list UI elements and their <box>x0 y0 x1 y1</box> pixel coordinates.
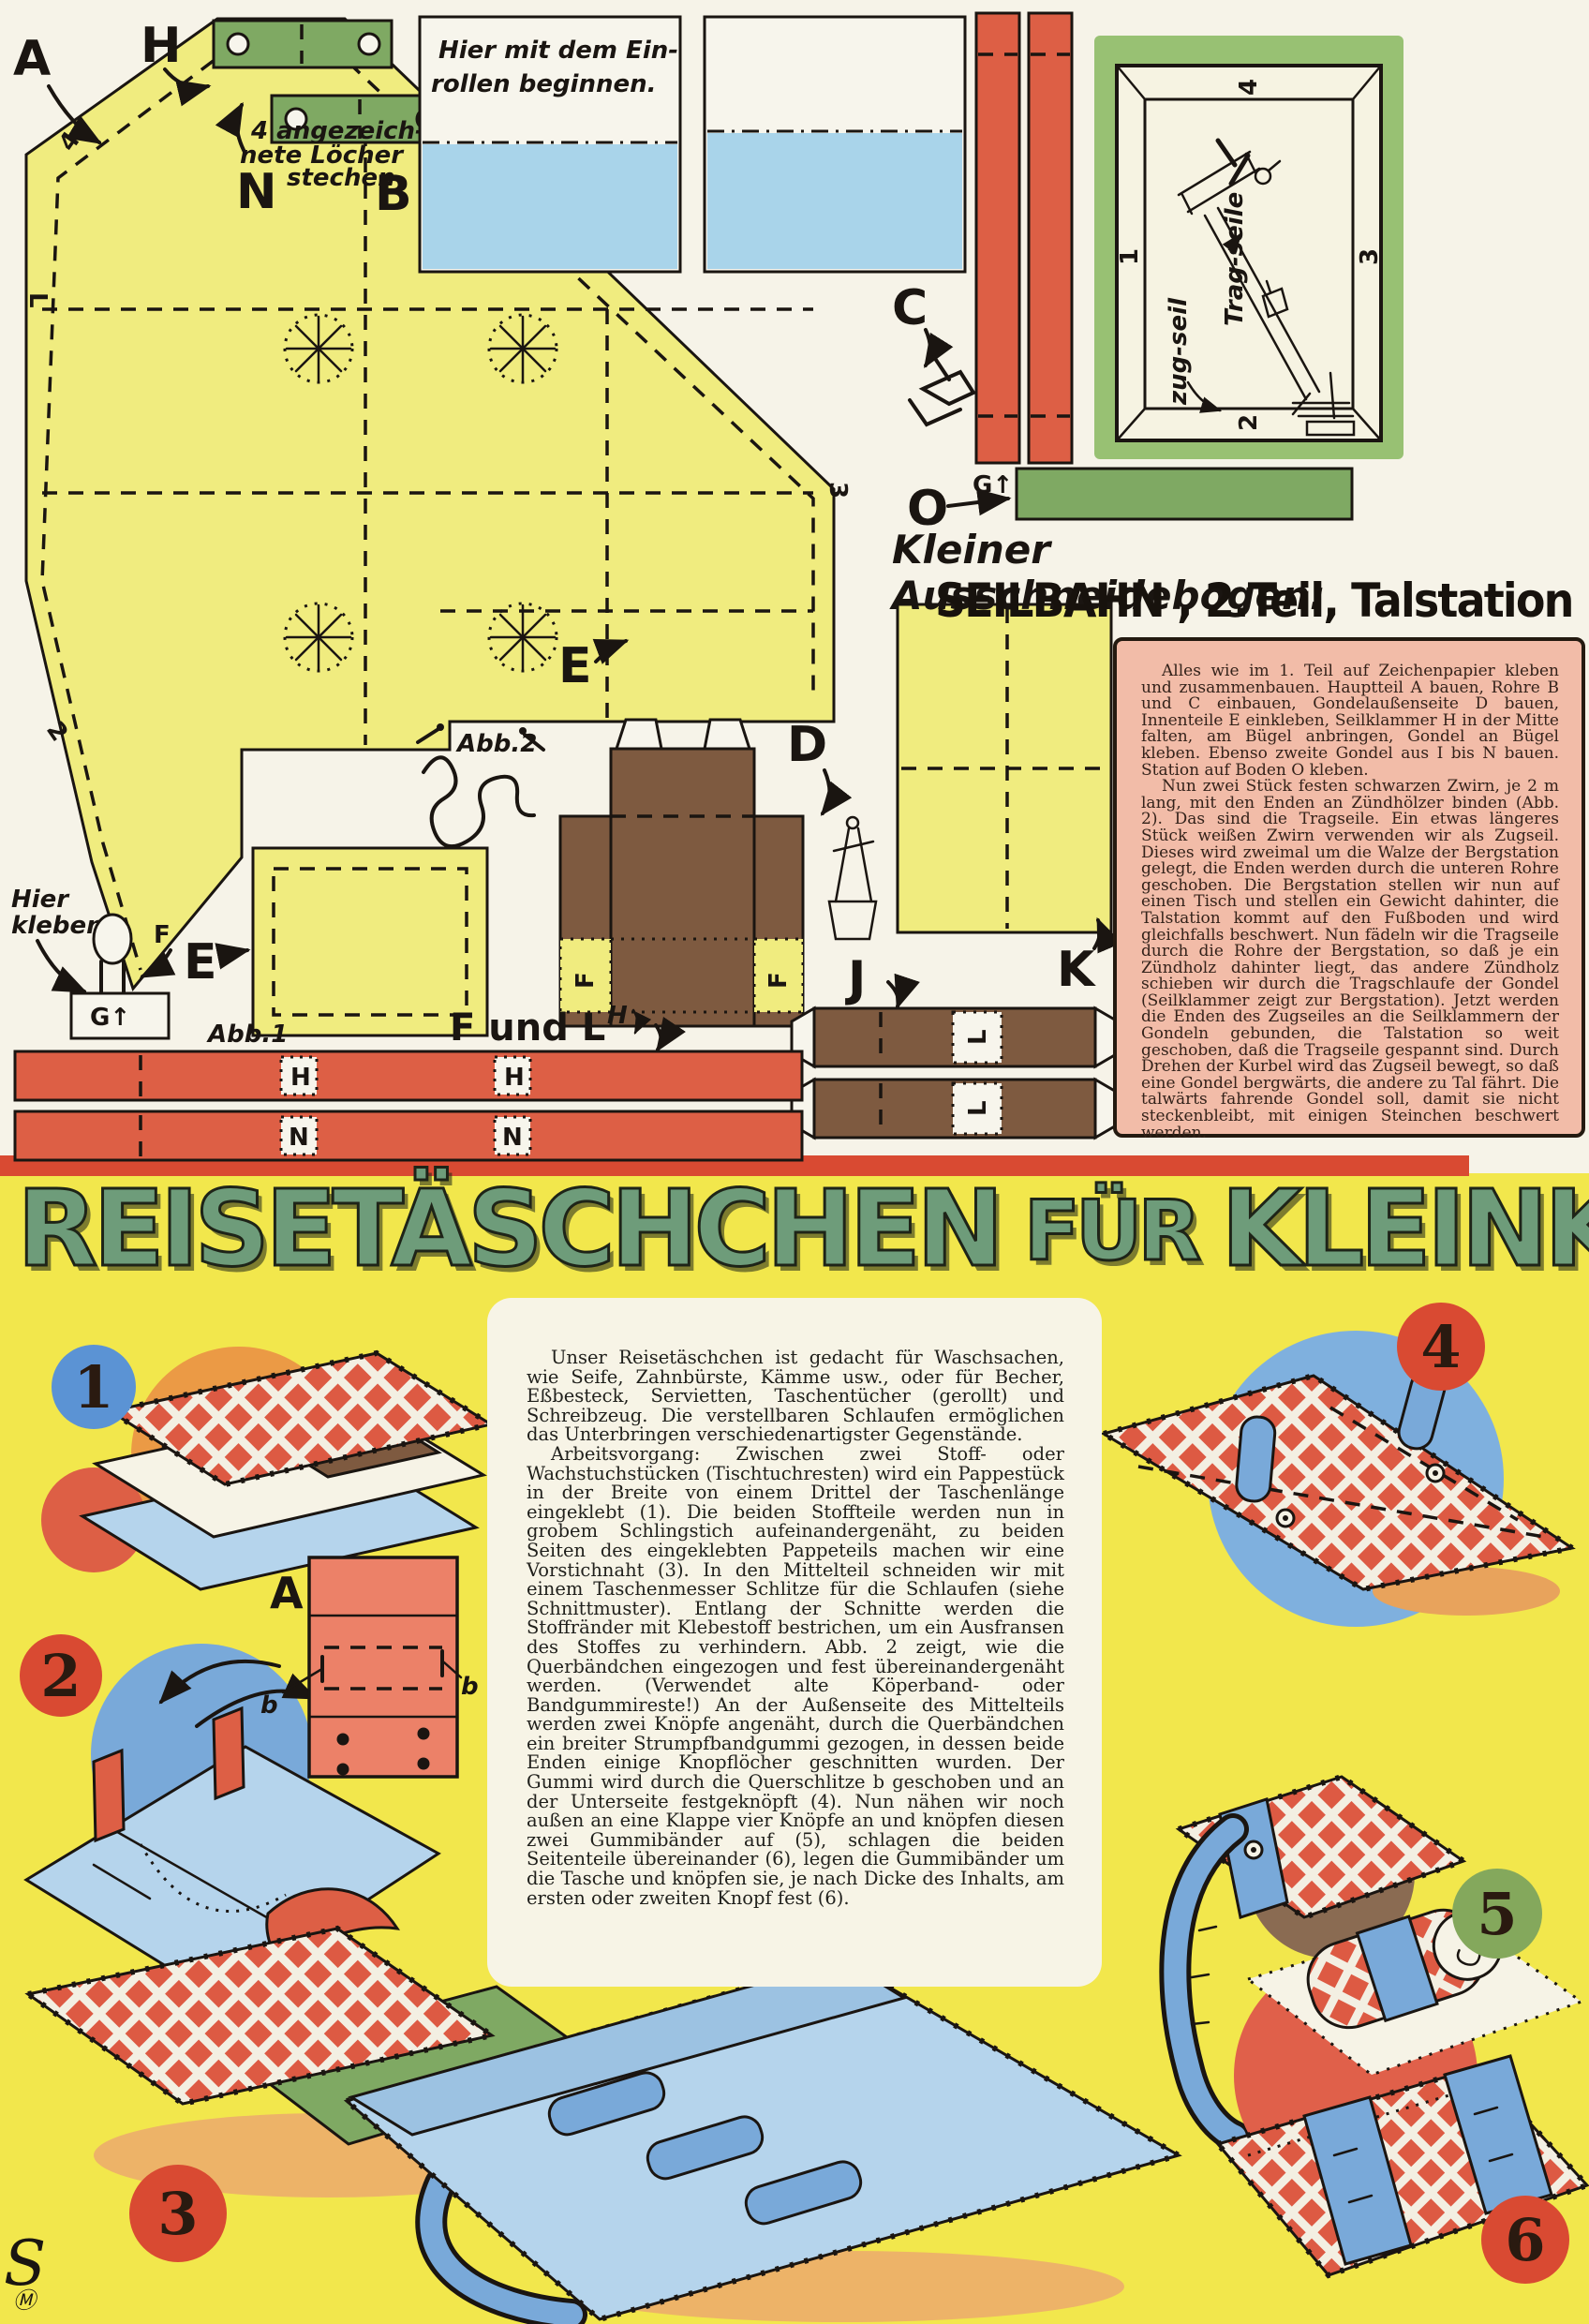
label-piece-N: N <box>236 164 277 220</box>
schematic-label-b-right: b <box>461 1673 479 1701</box>
d-tab-F-left: F <box>572 972 600 989</box>
page-title-seilbahn: SEILBAHN , 2.Teil, Talstation <box>935 574 1538 628</box>
finished-model-picture: 4 1 3 2 Trag-seile zug-seil <box>1094 36 1403 459</box>
label-F-und-L: F und L <box>450 1006 605 1050</box>
piece-J-bars: L L <box>792 1008 1118 1138</box>
edge-mark-3: 3 <box>824 482 852 499</box>
figure-number-1: 1 <box>52 1345 136 1429</box>
label-tragseile: Trag-seile <box>1221 192 1249 326</box>
publisher-logo: S Ⓜ <box>4 2236 46 2312</box>
frame-number-3: 3 <box>1356 248 1384 265</box>
note-roll-line2: rollen beginnen. <box>431 70 657 98</box>
svg-text:Hier: Hier <box>11 886 70 914</box>
article-paragraph-1: Unser Reisetäschchen ist gedacht für Was… <box>527 1348 1064 1445</box>
piece-K <box>898 604 1111 932</box>
arrow-O <box>948 499 1008 506</box>
gondola-sketch <box>829 817 876 939</box>
magazine-page: 4 L 2 3 A H 4 angezeich- nete Löcher ste… <box>0 0 1589 2324</box>
label-piece-F: F <box>154 921 171 949</box>
label-piece-E2: E <box>558 638 592 694</box>
j-tab-L1: L <box>964 1029 992 1045</box>
figure-number-3: 3 <box>129 2165 227 2262</box>
label-H-small: H <box>607 1002 628 1030</box>
frame-number-1: 1 <box>1116 248 1144 265</box>
bracket-sketch <box>910 357 973 425</box>
piece-D: F F <box>560 720 803 1026</box>
piece-O-floor <box>1017 469 1352 519</box>
strip1-tab-H1: H <box>290 1064 311 1092</box>
headline-word-1: REISETÄSCHCHEN <box>17 1177 1000 1282</box>
roll-box-2 <box>705 17 965 272</box>
piece-C-tubes <box>976 13 1072 463</box>
label-piece-B: B <box>375 166 412 222</box>
arrow-J <box>888 982 898 1006</box>
headline-word-2: FÜR <box>1024 1177 1196 1273</box>
figure-number-6: 6 <box>1481 2196 1569 2284</box>
arrow-C <box>926 330 930 365</box>
d-tab-F-right: F <box>765 972 793 989</box>
arrow-E1 <box>225 950 247 960</box>
instruction-box: Alles wie im 1. Teil auf Zeichenpapier k… <box>1113 637 1585 1138</box>
strip2-tab-N1: N <box>289 1124 309 1152</box>
edge-mark-L: L <box>23 292 52 308</box>
note-roll-line1: Hier mit dem Ein- <box>438 37 678 65</box>
label-piece-J: J <box>845 951 866 1007</box>
instruction-paragraph-1: Alles wie im 1. Teil auf Zeichenpapier k… <box>1141 663 1559 779</box>
piece-F-L-strips: H H N N <box>15 1051 802 1160</box>
figure-number-4: 4 <box>1397 1303 1485 1391</box>
instruction-paragraph-2: Nun zwei Stück festen schwarzen Zwirn, j… <box>1141 779 1559 1141</box>
hier-kleben-note: Hier kleben <box>11 886 104 991</box>
label-piece-H: H <box>141 18 182 74</box>
arrow-D <box>823 770 830 813</box>
piece-B-roll-box: Hier mit dem Ein- rollen beginnen. <box>420 17 680 272</box>
strip1-tab-H2: H <box>504 1064 525 1092</box>
label-piece-C: C <box>892 280 928 336</box>
figure-number-2: 2 <box>20 1634 102 1717</box>
frame-number-4: 4 <box>1235 79 1263 96</box>
frame-number-2: 2 <box>1235 414 1263 431</box>
strip2-tab-N2: N <box>502 1124 523 1152</box>
label-piece-K: K <box>1057 942 1096 998</box>
headline-word-3: KLEINKRAM <box>1221 1177 1589 1282</box>
figure-number-5: 5 <box>1452 1869 1542 1959</box>
article-text-panel: Unser Reisetäschchen ist gedacht für Was… <box>487 1298 1102 1987</box>
label-abb1: Abb.1 <box>206 1020 288 1049</box>
schematic-label-A: A <box>270 1568 304 1618</box>
arrow-FL <box>656 1025 661 1050</box>
g-box-label: G↑ <box>90 1004 130 1032</box>
headline-reisetaeschchen: REISETÄSCHCHEN FÜR KLEINKRAM <box>17 1177 1583 1282</box>
label-piece-E1: E <box>184 934 217 991</box>
label-zugseil: zug-seil <box>1165 297 1193 406</box>
j-tab-L2: L <box>964 1100 992 1116</box>
article-paragraph-2: Arbeitsvorgang: Zwischen zwei Stoff- ode… <box>527 1445 1064 1908</box>
label-piece-A: A <box>13 31 51 87</box>
schematic-label-b-left: b <box>260 1691 278 1720</box>
svg-text:kleben: kleben <box>11 912 104 940</box>
label-pi,ece-G: G↑ <box>973 471 1013 499</box>
label-piece-D: D <box>787 717 827 773</box>
